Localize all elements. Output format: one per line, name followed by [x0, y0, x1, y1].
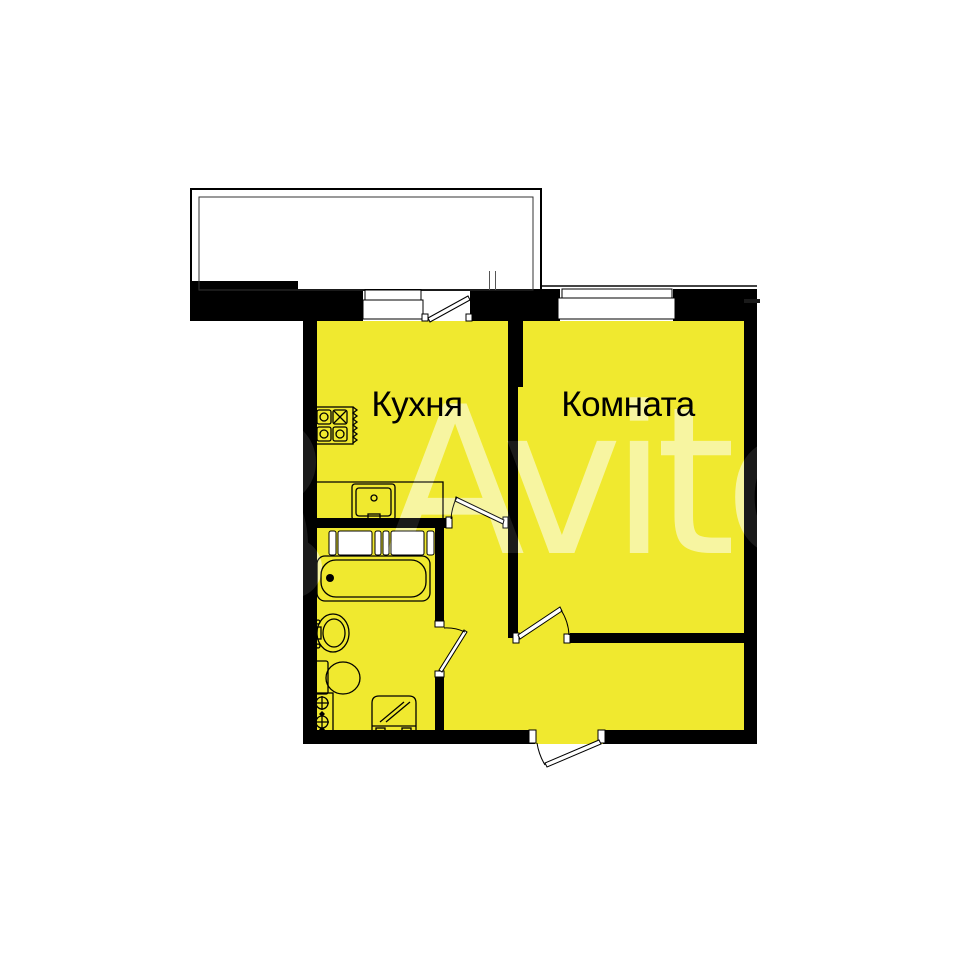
kitchen-window [363, 300, 423, 319]
room-window-sill [562, 289, 672, 298]
wall-bottom-left [303, 730, 535, 744]
balcony-door-jamb [422, 314, 428, 321]
wall-tick-top-right [744, 299, 760, 303]
wall-bathroom-right-stub [435, 672, 444, 730]
balcony-inner-line [199, 197, 533, 290]
wall-top-left-block [190, 281, 298, 321]
floorplan-canvas: Avito [0, 0, 960, 960]
balcony-divider-line [489, 271, 490, 290]
entrance-door-jamb [529, 730, 536, 743]
entrance-door-leaf [545, 740, 601, 767]
wall-top-kitchen-left [298, 289, 363, 321]
living-room-label: Комната [518, 386, 738, 424]
balcony [191, 189, 757, 290]
kitchen-window-sill [365, 290, 421, 300]
facade-face-line [542, 285, 757, 287]
room-window [558, 298, 675, 319]
wall-room-bottom [570, 633, 744, 643]
balcony-door-jamb [466, 314, 472, 321]
balcony-door-leaf [428, 296, 470, 322]
avito-logo-circles-icon-overlay [56, 390, 322, 653]
entrance-door-arc [537, 743, 545, 765]
wall-bottom-right [603, 730, 757, 744]
balcony-divider-line2 [495, 271, 496, 290]
wall-top-middle [470, 289, 560, 321]
floorplan-svg: Avito [0, 0, 960, 960]
kitchen-room-label: Кухня [307, 386, 527, 424]
balcony-outer-line [191, 189, 541, 290]
bathroom-door-jamb [435, 621, 444, 627]
room-door-jamb [564, 634, 570, 643]
entrance-threshold [535, 730, 603, 744]
